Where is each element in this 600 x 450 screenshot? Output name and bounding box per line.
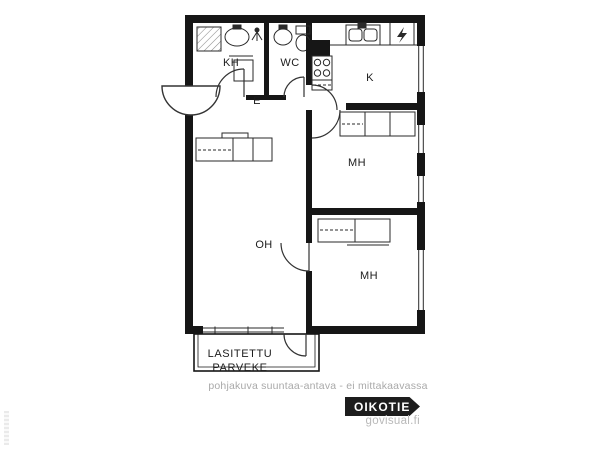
room-label-oh: OH [255, 239, 272, 251]
balcony-glazing [203, 327, 284, 334]
dishwasher [312, 80, 332, 90]
side-watermark [4, 411, 9, 445]
window [419, 46, 424, 92]
room-label-mh2: MH [360, 270, 378, 282]
front-door-arc [162, 86, 220, 115]
bathroom-sink-icon [225, 25, 249, 46]
room-label-wc: WC [280, 57, 299, 69]
window [419, 250, 424, 310]
balcony-label-line1: LASITETTU [208, 348, 273, 360]
window [419, 125, 424, 153]
wc-sink-icon [274, 25, 292, 45]
floorplan-page: KH WC K E MH OH MH LASITETTU PARVEKE poh… [0, 0, 600, 450]
fridge-cell [390, 23, 414, 45]
vent-shaft [306, 40, 330, 56]
lightning-icon [397, 27, 407, 43]
govisual-credit: govisual.fi [320, 415, 420, 427]
wardrobe-mh2 [318, 219, 390, 245]
room-label-kh: KH [223, 57, 239, 69]
balcony-label-line2: PARVEKE [212, 362, 267, 374]
disclaimer-text: pohjakuva suuntaa-antava - ei mittakaava… [168, 380, 468, 392]
walls [185, 15, 425, 334]
wardrobe-mh1 [340, 112, 415, 136]
oikotie-logo-text: OIKOTIE [354, 400, 410, 414]
door-wc [284, 77, 304, 97]
door-kitchen [312, 85, 337, 110]
oikotie-logo-badge: OIKOTIE [345, 397, 420, 416]
shower-head-icon [252, 28, 262, 41]
door-mh1 [312, 110, 340, 138]
cabinet-oh [196, 133, 272, 161]
door-mh2 [281, 243, 309, 271]
door-balcony [284, 334, 306, 356]
door-kh [216, 69, 244, 97]
window [419, 176, 424, 202]
room-label-mh1: MH [348, 157, 366, 169]
room-label-e: E [253, 95, 261, 107]
room-label-k: K [366, 72, 374, 84]
stove-icon [312, 56, 332, 80]
kitchen-sink-icon [346, 23, 380, 45]
shower-area [197, 27, 221, 51]
windows [419, 46, 424, 310]
